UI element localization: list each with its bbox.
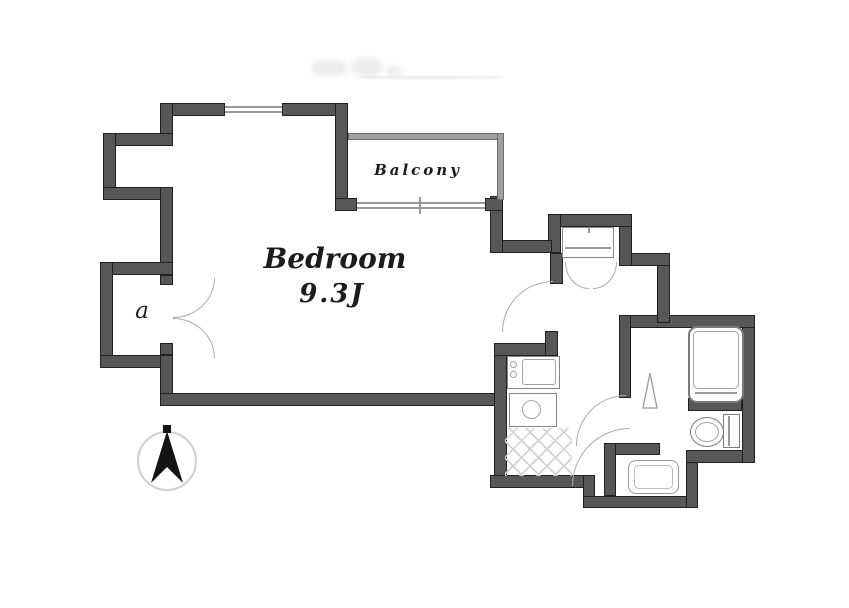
window-center-tick [419,197,421,214]
north-arrow-compass [134,421,202,493]
bathtub-inner [693,331,739,389]
closet-door-arc [173,278,215,318]
wall [160,393,507,406]
closet-label: a [129,298,155,324]
faint-smudge [386,66,402,75]
faucet-dot [510,371,517,378]
wall [160,275,173,285]
sink-basin [522,359,556,385]
wall [335,198,357,211]
bathroom-folding-door-icon [637,370,663,410]
window-line [225,106,282,108]
wall [335,103,348,211]
balcony-railing [348,133,504,140]
hallway-door-arc [502,281,553,332]
faint-smudge [352,58,382,76]
wall [160,343,173,355]
bathtub-apron-line [695,392,737,394]
balcony-label: Balcony [358,161,478,179]
toilet-bowl-inner [695,422,719,442]
balcony-railing [497,133,504,200]
closet-door-arc [173,318,215,358]
faint-smudge [312,60,348,76]
genkan-tile-floor [505,428,572,476]
alcove-door-arc [565,262,589,289]
wall [545,331,558,356]
window-line [357,207,485,209]
wall [100,262,113,368]
window-line [225,111,282,113]
washing-machine-detail [565,247,611,249]
burner-circle [522,400,541,419]
window-line [357,202,485,204]
faint-smudge [358,76,503,79]
washing-machine-detail [588,227,590,233]
alcove-door-arc [593,262,617,289]
wall [583,496,698,508]
toilet-tank [723,414,740,448]
toilet-tank-line [728,416,730,446]
floor-plan: Bedroom 9.3J Balcony a [0,0,849,608]
wall [619,315,631,398]
bedroom-size-label: 9.3J [262,279,402,309]
bedroom-label: Bedroom [255,242,415,275]
faucet-dot [510,361,517,368]
washbasin-inner [634,465,673,489]
